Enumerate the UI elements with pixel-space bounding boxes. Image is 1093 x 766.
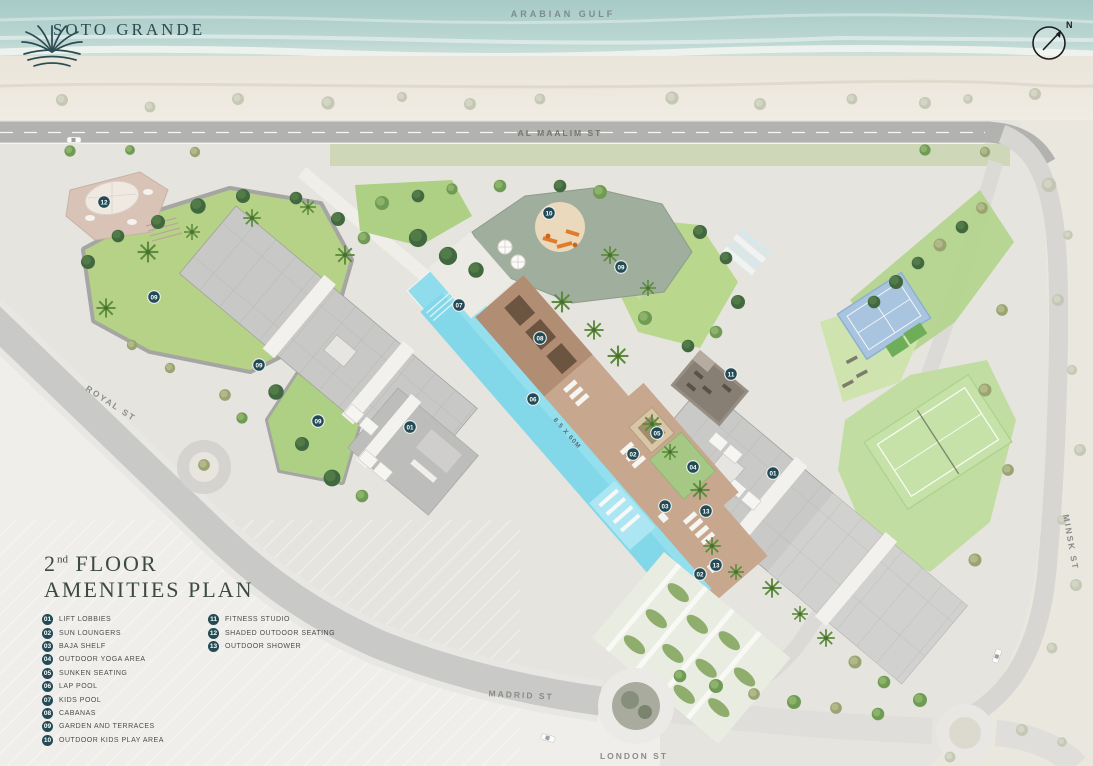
plan-marker-06: 06 [527, 393, 540, 406]
title-floor-ordinal: nd [57, 554, 68, 566]
svg-text:08: 08 [536, 335, 544, 342]
legend-item-05: 05SUNKEN SEATING [42, 667, 164, 680]
legend-item-02: 02SUN LOUNGERS [42, 626, 164, 639]
legend-label: SUN LOUNGERS [59, 630, 121, 637]
plan-marker-04: 04 [687, 461, 700, 474]
site-plan-canvas: ARABIAN GULF AL MAALIM ST ROYAL ST MINSK… [0, 0, 1093, 766]
plan-marker-13: 13 [700, 505, 713, 518]
legend-label: OUTDOOR KIDS PLAY AREA [59, 737, 164, 744]
legend-col-2: 11FITNESS STUDIO12SHADED OUTDOOR SEATING… [208, 613, 335, 653]
plan-marker-09: 09 [615, 261, 628, 274]
svg-text:09: 09 [314, 418, 322, 425]
legend-badge: 02 [42, 628, 53, 639]
svg-text:09: 09 [617, 264, 625, 271]
legend-badge: 07 [42, 695, 53, 706]
plan-marker-02: 02 [627, 448, 640, 461]
site-plan-page: ARABIAN GULF AL MAALIM ST ROYAL ST MINSK… [0, 0, 1093, 766]
beach-band [0, 56, 1093, 122]
svg-text:11: 11 [728, 371, 735, 378]
legend-label: KIDS POOL [59, 697, 101, 704]
street-label-al-maalim: AL MAALIM ST [518, 128, 603, 138]
brand-logo: SOTO GRANDE [14, 18, 244, 40]
title-floor-word: FLOOR [76, 551, 158, 576]
legend-item-07: 07KIDS POOL [42, 693, 164, 706]
plan-marker-03: 03 [659, 500, 672, 513]
legend-badge: 04 [42, 654, 53, 665]
plan-marker-12: 12 [98, 196, 111, 209]
street-label-london: LONDON ST [600, 751, 668, 761]
legend-item-01: 01LIFT LOBBIES [42, 613, 164, 626]
plan-marker-11: 11 [725, 368, 738, 381]
svg-text:04: 04 [689, 464, 697, 471]
legend-badge: 06 [42, 681, 53, 692]
svg-text:09: 09 [255, 362, 263, 369]
svg-text:05: 05 [653, 430, 661, 437]
legend-label: BAJA SHELF [59, 643, 106, 650]
plan-marker-08: 08 [534, 332, 547, 345]
svg-text:02: 02 [696, 571, 704, 578]
legend-item-12: 12SHADED OUTDOOR SEATING [208, 626, 335, 639]
legend-badge: 12 [208, 628, 219, 639]
legend-label: LAP POOL [59, 683, 98, 690]
plan-marker-09: 09 [312, 415, 325, 428]
plan-marker-02: 02 [694, 568, 707, 581]
legend-col-1: 01LIFT LOBBIES02SUN LOUNGERS03BAJA SHELF… [42, 613, 164, 747]
svg-text:07: 07 [455, 302, 463, 309]
legend-label: GARDEN AND TERRACES [59, 723, 155, 730]
legend-item-13: 13OUTDOOR SHOWER [208, 640, 335, 653]
legend-label: FITNESS STUDIO [225, 616, 290, 623]
svg-text:03: 03 [661, 503, 669, 510]
legend-item-06: 06LAP POOL [42, 680, 164, 693]
legend-badge: 08 [42, 708, 53, 719]
legend-label: SUNKEN SEATING [59, 670, 127, 677]
svg-text:06: 06 [529, 396, 537, 403]
legend-label: SHADED OUTDOOR SEATING [225, 630, 335, 637]
legend-badge: 03 [42, 641, 53, 652]
legend-label: OUTDOOR SHOWER [225, 643, 301, 650]
plan-title-line2: AMENITIES PLAN [44, 577, 254, 603]
svg-text:09: 09 [150, 294, 158, 301]
svg-text:01: 01 [769, 470, 777, 477]
legend-item-11: 11FITNESS STUDIO [208, 613, 335, 626]
svg-text:10: 10 [545, 210, 553, 217]
plan-marker-07: 07 [453, 299, 466, 312]
legend-badge: 01 [42, 614, 53, 625]
plan-marker-13: 13 [710, 559, 723, 572]
legend-item-03: 03BAJA SHELF [42, 640, 164, 653]
title-floor-number: 2 [44, 551, 57, 576]
legend-item-04: 04OUTDOOR YOGA AREA [42, 653, 164, 666]
plan-marker-01: 01 [767, 467, 780, 480]
plan-marker-10: 10 [543, 207, 556, 220]
legend-badge: 09 [42, 721, 53, 732]
legend-label: LIFT LOBBIES [59, 616, 111, 623]
legend-item-08: 08CABANAS [42, 707, 164, 720]
legend-label: OUTDOOR YOGA AREA [59, 656, 146, 663]
legend-label: CABANAS [59, 710, 96, 717]
legend-badge: 05 [42, 668, 53, 679]
legend-badge: 10 [42, 735, 53, 746]
plan-marker-01: 01 [404, 421, 417, 434]
svg-text:13: 13 [712, 562, 720, 569]
svg-text:12: 12 [100, 199, 108, 206]
svg-text:13: 13 [702, 508, 710, 515]
legend-item-09: 09GARDEN AND TERRACES [42, 720, 164, 733]
plan-marker-05: 05 [651, 427, 664, 440]
plan-marker-09: 09 [253, 359, 266, 372]
svg-text:01: 01 [406, 424, 414, 431]
legend-item-10: 10OUTDOOR KIDS PLAY AREA [42, 734, 164, 747]
legend-badge: 13 [208, 641, 219, 652]
plan-title: 2nd FLOOR AMENITIES PLAN [44, 551, 254, 603]
compass-north-label: N [1066, 20, 1073, 30]
legend-badge: 11 [208, 614, 219, 625]
palm-sun-emblem-icon [14, 18, 90, 70]
plan-marker-09: 09 [148, 291, 161, 304]
svg-text:02: 02 [629, 451, 637, 458]
sea-label: ARABIAN GULF [511, 9, 616, 19]
